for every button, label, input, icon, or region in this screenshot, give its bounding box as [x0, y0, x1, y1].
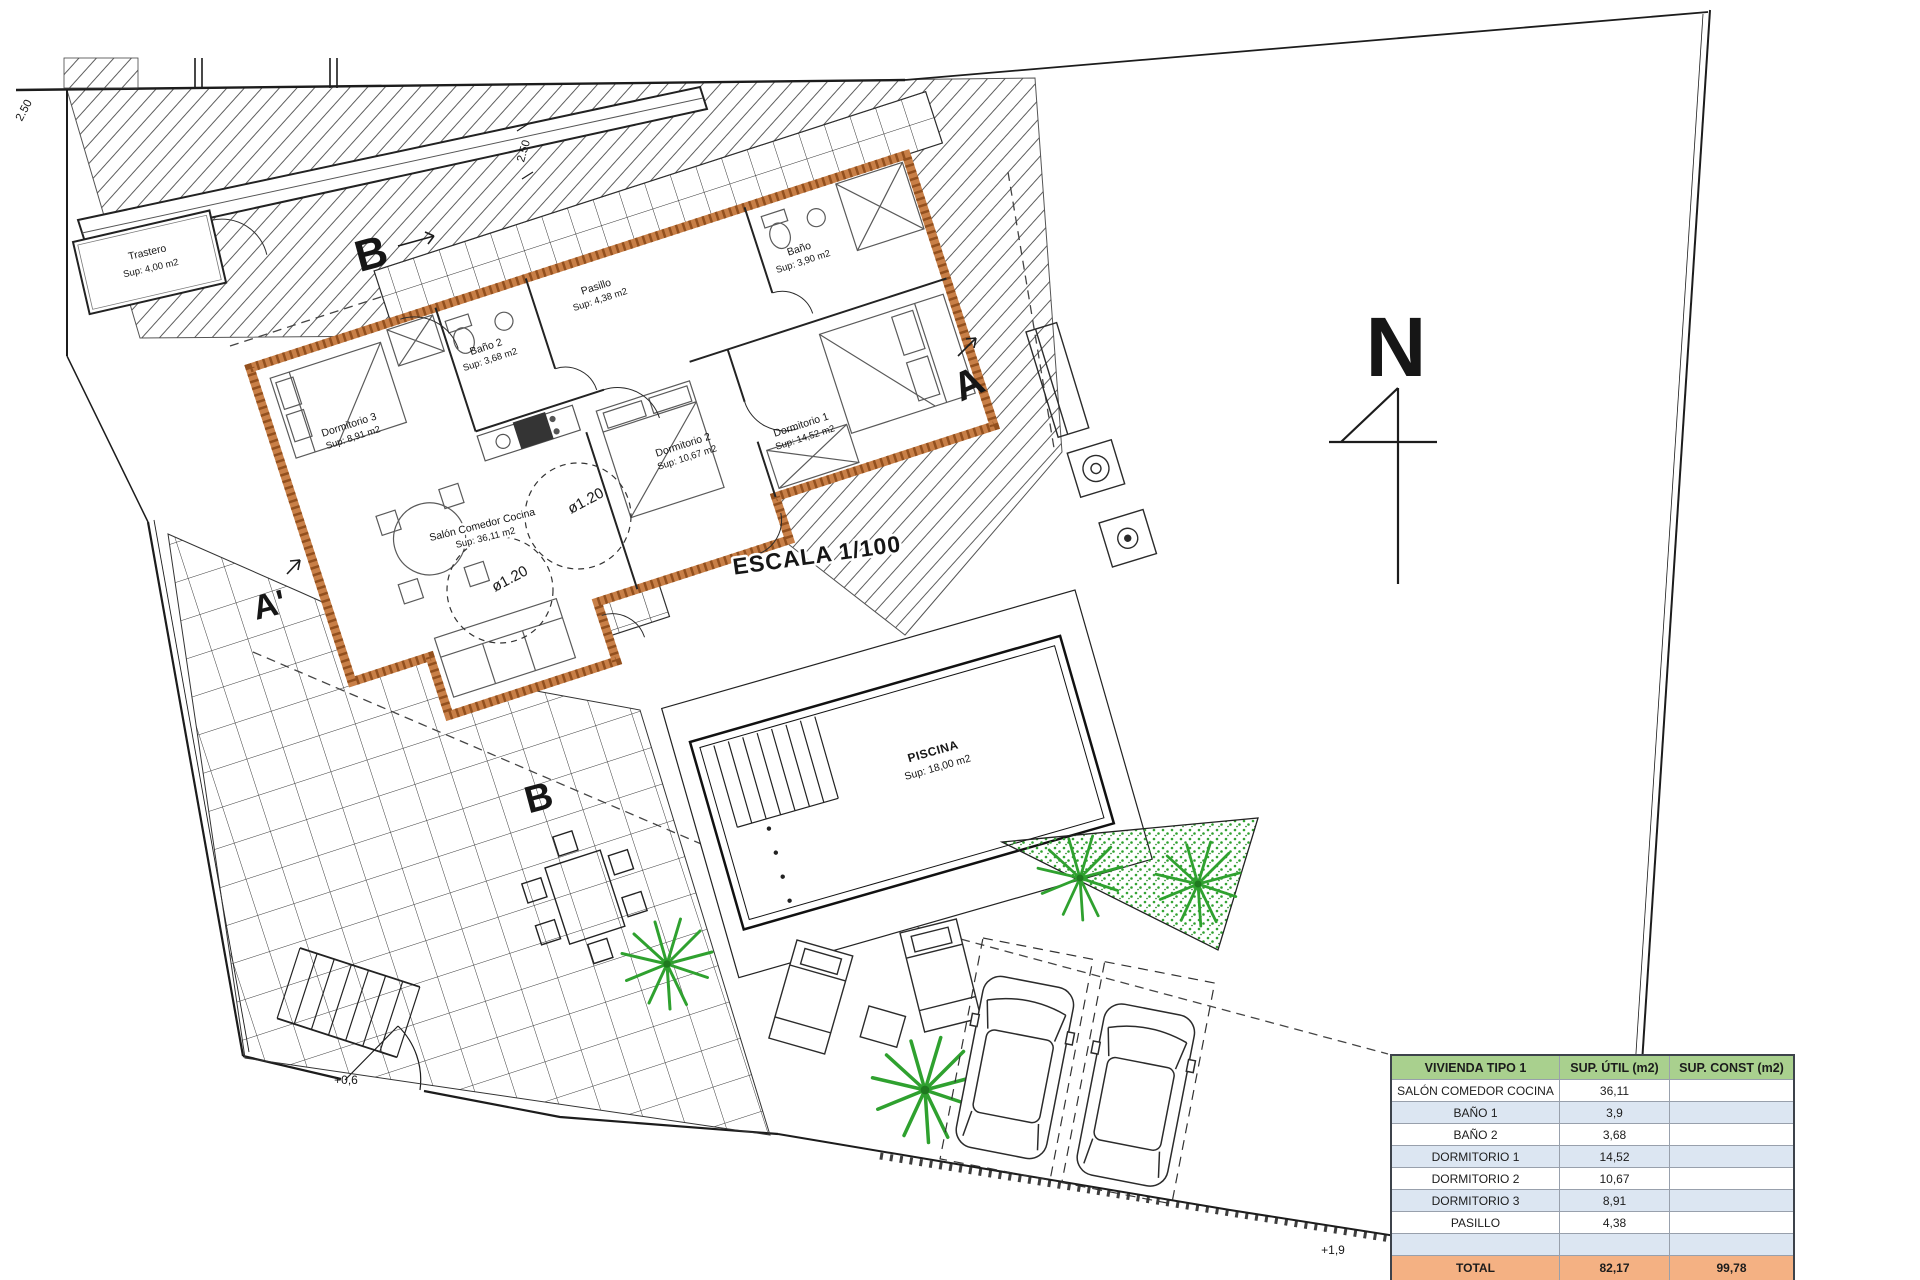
table-row-empty — [1391, 1234, 1794, 1256]
row-util: 36,11 — [1560, 1080, 1670, 1102]
area-table-header-row: VIVIENDA TIPO 1 SUP. ÚTIL (m2) SUP. CONS… — [1391, 1055, 1794, 1080]
total-const: 99,78 — [1670, 1256, 1795, 1280]
floor-plan-sheet: Trastero Sup: 4,00 m2 PISCINA Sup: 18,00… — [0, 0, 1920, 1280]
table-row: DORMITORIO 3 8,91 — [1391, 1190, 1794, 1212]
area-table: VIVIENDA TIPO 1 SUP. ÚTIL (m2) SUP. CONS… — [1390, 1054, 1795, 1280]
row-util: 8,91 — [1560, 1190, 1670, 1212]
row-const — [1670, 1102, 1795, 1124]
table-row: DORMITORIO 1 14,52 — [1391, 1146, 1794, 1168]
level-corner: +1,9 — [1321, 1243, 1345, 1257]
row-label: BAÑO 1 — [1391, 1102, 1560, 1124]
table-row: DORMITORIO 2 10,67 — [1391, 1168, 1794, 1190]
row-label: PASILLO — [1391, 1212, 1560, 1234]
table-header-sup-const: SUP. CONST (m2) — [1670, 1055, 1795, 1080]
row-const — [1670, 1146, 1795, 1168]
row-util — [1560, 1234, 1670, 1256]
row-const — [1670, 1212, 1795, 1234]
table-row: PASILLO 4,38 — [1391, 1212, 1794, 1234]
level-gate: +0,6 — [334, 1073, 358, 1087]
table-header-vivienda: VIVIENDA TIPO 1 — [1391, 1055, 1560, 1080]
row-util: 4,38 — [1560, 1212, 1670, 1234]
row-util: 10,67 — [1560, 1168, 1670, 1190]
row-label: SALÓN COMEDOR COCINA — [1391, 1080, 1560, 1102]
row-label: DORMITORIO 3 — [1391, 1190, 1560, 1212]
row-util: 3,68 — [1560, 1124, 1670, 1146]
row-const — [1670, 1168, 1795, 1190]
row-util: 3,9 — [1560, 1102, 1670, 1124]
row-const — [1670, 1124, 1795, 1146]
row-util: 14,52 — [1560, 1146, 1670, 1168]
table-row: BAÑO 1 3,9 — [1391, 1102, 1794, 1124]
table-row: BAÑO 2 3,68 — [1391, 1124, 1794, 1146]
row-label: BAÑO 2 — [1391, 1124, 1560, 1146]
table-row: SALÓN COMEDOR COCINA 36,11 — [1391, 1080, 1794, 1102]
row-const — [1670, 1080, 1795, 1102]
table-total-row: TOTAL 82,17 99,78 — [1391, 1256, 1794, 1280]
total-label: TOTAL — [1391, 1256, 1560, 1280]
row-label: DORMITORIO 2 — [1391, 1168, 1560, 1190]
table-header-sup-util: SUP. ÚTIL (m2) — [1560, 1055, 1670, 1080]
row-const — [1670, 1234, 1795, 1256]
total-util: 82,17 — [1560, 1256, 1670, 1280]
north-label: N — [1366, 300, 1427, 394]
row-label — [1391, 1234, 1560, 1256]
row-const — [1670, 1190, 1795, 1212]
row-label: DORMITORIO 1 — [1391, 1146, 1560, 1168]
